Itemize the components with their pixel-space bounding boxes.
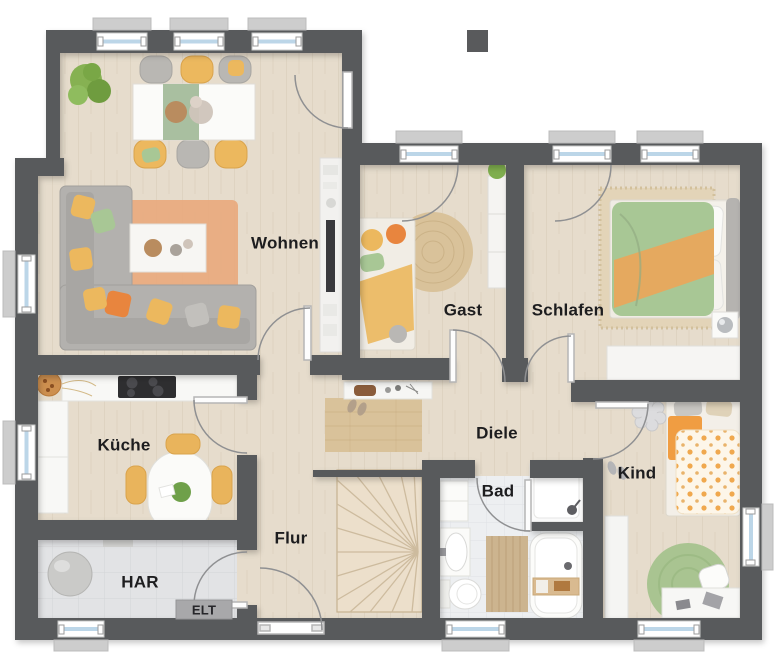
gast-wardrobe [488,161,506,288]
tub-faucet [564,562,572,570]
room-label-gast: Gast [444,302,483,319]
bedside-lamp [717,317,733,333]
floor-plan-drawing [0,0,775,662]
toilet [440,579,481,609]
tv [326,220,335,292]
room-label-schlafen: Schlafen [532,302,604,319]
room-label-har: HAR [121,574,158,591]
bath-wall-shelf [436,463,472,478]
floor-plan: Wohnen Gast Schlafen Küche Diele Kind Ba… [0,0,775,662]
nightstand [712,312,738,338]
bath-mat [486,536,528,612]
water-heater [48,552,92,596]
room-label-kind: Kind [618,465,657,482]
kid-bed [666,396,740,516]
room-label-elt: ELT [192,604,216,617]
diele-rug [325,398,422,452]
coat-shelf [344,382,432,399]
schlafen-wardrobe [607,346,740,380]
bath-cabinet [440,481,468,521]
coffee-table [130,224,206,272]
bathtub [530,533,582,618]
dining-table [133,84,255,140]
chimney [467,30,488,52]
double-bed [610,198,742,320]
washbasin [440,528,470,576]
cooktop [118,376,176,398]
room-label-flur: Flur [275,530,308,547]
daybed [353,218,415,350]
room-label-bad: Bad [482,483,515,500]
desk [662,588,740,618]
room-label-diele: Diele [476,425,518,442]
room-label-kueche: Küche [98,437,151,454]
room-label-wohnen: Wohnen [251,235,319,252]
tv-lowboard [320,158,342,352]
stairs [337,470,422,612]
chair-pillow [228,60,244,76]
kind-wardrobe [605,516,628,622]
